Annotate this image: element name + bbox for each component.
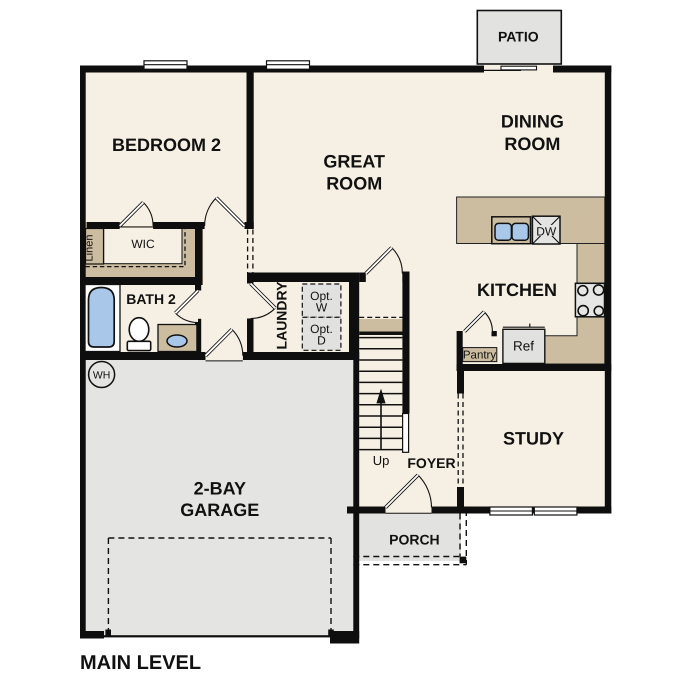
svg-text:D: D (317, 334, 326, 348)
svg-text:BEDROOM 2: BEDROOM 2 (112, 135, 221, 155)
svg-text:GREAT: GREAT (323, 152, 385, 172)
svg-text:Ref: Ref (513, 339, 534, 354)
svg-text:KITCHEN: KITCHEN (477, 280, 557, 300)
svg-text:PATIO: PATIO (498, 29, 539, 45)
svg-text:WH: WH (93, 369, 111, 381)
svg-text:Up: Up (373, 453, 390, 468)
svg-text:DW: DW (536, 224, 557, 238)
svg-text:WIC: WIC (131, 237, 155, 251)
svg-text:FOYER: FOYER (407, 455, 455, 471)
svg-text:STUDY: STUDY (503, 429, 564, 449)
svg-text:ROOM: ROOM (504, 134, 560, 154)
svg-text:DINING: DINING (501, 112, 564, 132)
svg-text:ROOM: ROOM (326, 174, 382, 194)
svg-text:LAUNDRY: LAUNDRY (274, 281, 290, 350)
svg-text:Pantry: Pantry (463, 350, 496, 362)
svg-text:MAIN LEVEL: MAIN LEVEL (80, 652, 201, 674)
svg-text:Linen: Linen (84, 235, 96, 262)
svg-text:W: W (316, 301, 328, 315)
svg-text:2-BAY: 2-BAY (194, 479, 246, 499)
svg-text:GARAGE: GARAGE (180, 500, 259, 520)
svg-text:PORCH: PORCH (389, 532, 440, 548)
svg-text:BATH 2: BATH 2 (126, 291, 176, 307)
